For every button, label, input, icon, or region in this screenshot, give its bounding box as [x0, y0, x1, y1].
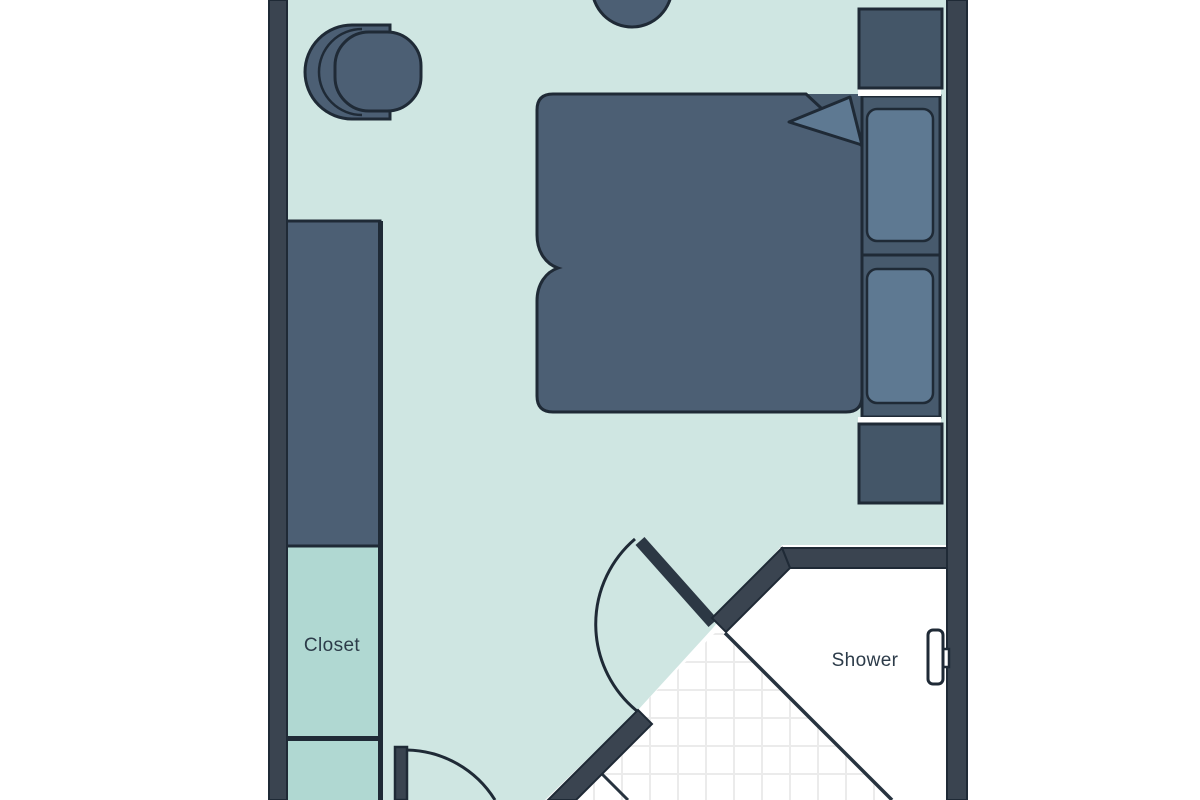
shower-fixture — [928, 630, 943, 684]
nightstand-bottom — [859, 424, 942, 503]
wardrobe — [284, 221, 380, 546]
armchair — [305, 25, 421, 119]
floorplan: Closet Shower — [0, 0, 1200, 800]
entry-door-leaf — [395, 747, 407, 800]
closet-label: Closet — [304, 635, 361, 656]
pillow-bottom — [867, 269, 933, 403]
nightstand-top — [859, 9, 942, 88]
shower-label: Shower — [832, 650, 899, 671]
pillow-top — [867, 109, 933, 241]
right-wall — [947, 0, 967, 800]
armchair-seat — [335, 32, 421, 111]
left-wall — [269, 0, 287, 800]
bed-duvet — [537, 94, 862, 412]
bathroom-wall-top — [782, 548, 947, 568]
closet-area — [287, 543, 382, 800]
